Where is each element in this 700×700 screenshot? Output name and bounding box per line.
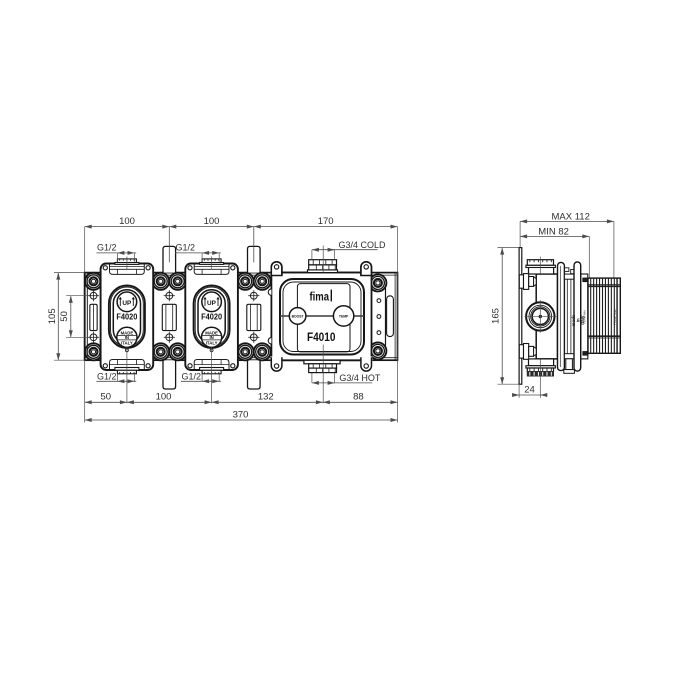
svg-text:MIN 82: MIN 82: [538, 226, 569, 237]
svg-text:100: 100: [119, 216, 135, 227]
svg-text:UP: UP: [207, 300, 217, 307]
svg-text:100: 100: [204, 216, 220, 227]
svg-text:IN: IN: [125, 335, 129, 340]
svg-text:F4020: F4020: [116, 311, 137, 321]
svg-text:105: 105: [47, 308, 58, 324]
svg-text:FIMAFIMA: FIMAFIMA: [613, 309, 617, 325]
svg-text:100: 100: [156, 392, 172, 403]
svg-text:370: 370: [233, 410, 249, 421]
svg-text:IN: IN: [209, 335, 213, 340]
svg-text:MAX 112: MAX 112: [552, 211, 590, 222]
svg-text:ITALY: ITALY: [206, 340, 218, 345]
svg-text:24: 24: [524, 385, 535, 396]
svg-text:F4010: F4010: [307, 331, 336, 344]
svg-text:165: 165: [491, 308, 502, 324]
svg-text:G3/4 COLD: G3/4 COLD: [339, 240, 387, 250]
svg-text:132: 132: [258, 392, 274, 403]
svg-text:G1/2: G1/2: [182, 372, 202, 382]
svg-text:G1/2: G1/2: [97, 242, 117, 252]
svg-text:88: 88: [353, 392, 364, 403]
svg-text:BOOST: BOOST: [292, 314, 305, 318]
svg-text:50: 50: [101, 392, 112, 403]
svg-text:TEMP: TEMP: [339, 314, 349, 318]
svg-text:fima: fima: [310, 290, 330, 304]
svg-text:G1/2: G1/2: [97, 372, 117, 382]
svg-text:FIMAFIMA: FIMAFIMA: [582, 310, 586, 324]
svg-text:G3/4 HOT: G3/4 HOT: [339, 373, 381, 383]
svg-text:UP: UP: [122, 300, 132, 307]
svg-text:F4020: F4020: [201, 311, 222, 321]
svg-text:50: 50: [59, 311, 70, 322]
svg-text:170: 170: [318, 216, 334, 227]
svg-text:ITALY: ITALY: [121, 340, 133, 345]
svg-text:G1/2: G1/2: [176, 242, 196, 252]
